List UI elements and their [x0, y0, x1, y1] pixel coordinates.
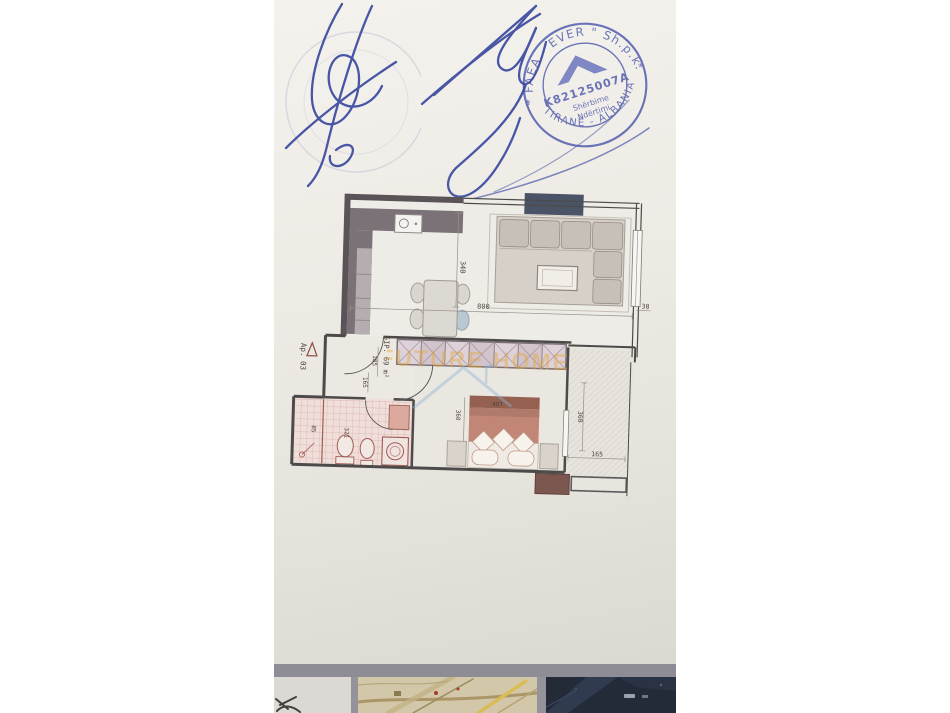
dark-map-dot — [660, 684, 662, 686]
shaft-block — [524, 193, 584, 216]
nightstand-right — [540, 444, 559, 470]
signature-right-strokes — [422, 6, 546, 197]
dark-map-label — [642, 695, 648, 698]
signature-tail-strokes — [459, 100, 649, 202]
apartment-label: Ap. 03 — [298, 343, 308, 370]
nightstand-left — [447, 441, 467, 467]
balcony-railing — [571, 477, 626, 493]
dark-map-band — [546, 677, 618, 713]
gallery-thumbnail-sketch[interactable] — [274, 677, 351, 713]
gallery-separator — [274, 664, 676, 677]
map-marker — [457, 688, 460, 691]
sofa — [495, 216, 625, 306]
bathroom-cabinet — [389, 405, 410, 430]
thumbnail-gap — [537, 677, 546, 713]
dim-wall-right: 30 — [641, 303, 649, 311]
dim-living-width: 800 — [477, 303, 490, 311]
washing-machine — [382, 437, 409, 466]
dim-bath-a: 85 — [310, 425, 317, 433]
dim-bedroom-height: 360 — [454, 410, 461, 421]
dark-map-dot — [575, 688, 577, 690]
signature-left — [276, 0, 421, 190]
map-building — [394, 691, 401, 696]
dark-map-band — [618, 677, 676, 691]
listing-photo: " FAEA - EVER " Sh.p.k. TIRANË - ALBANIA… — [274, 0, 676, 713]
map-roads — [358, 677, 537, 713]
gallery-thumbnail-dark-map[interactable] — [546, 677, 676, 713]
bidet — [360, 438, 375, 458]
bedroom-window — [563, 410, 569, 456]
dim-bed-width: 407 — [492, 401, 503, 408]
dark-map-label — [624, 694, 635, 698]
thumbnail-gap — [351, 677, 358, 713]
floor-plan: 340 800 30 185 165 Ap. 03 SIP. 69 m² 85 … — [278, 184, 667, 517]
signature-right — [414, 0, 664, 212]
balcony-hatch — [566, 349, 631, 494]
map-marker — [434, 691, 438, 695]
wardrobe — [397, 339, 567, 369]
dim-bath-b: 321 — [342, 427, 349, 438]
signature-left-strokes — [286, 4, 396, 186]
coffee-table — [537, 265, 578, 290]
area-label: SIP. 69 m² — [381, 336, 390, 378]
dim-entry-b: 165 — [361, 377, 368, 388]
floor-plan-drawing: 340 800 30 185 165 Ap. 03 SIP. 69 m² 85 … — [278, 184, 667, 517]
balcony-planter — [535, 473, 570, 494]
dim-entry-a: 185 — [371, 355, 378, 366]
sketch-strokes — [276, 697, 300, 712]
gallery-thumbnail-map[interactable] — [358, 677, 537, 713]
page-background: " FAEA - EVER " Sh.p.k. TIRANË - ALBANIA… — [0, 0, 950, 713]
dim-living-height: 340 — [458, 261, 466, 274]
dim-balcony-height: 360 — [576, 411, 584, 423]
dim-balcony-width: 165 — [591, 450, 603, 458]
